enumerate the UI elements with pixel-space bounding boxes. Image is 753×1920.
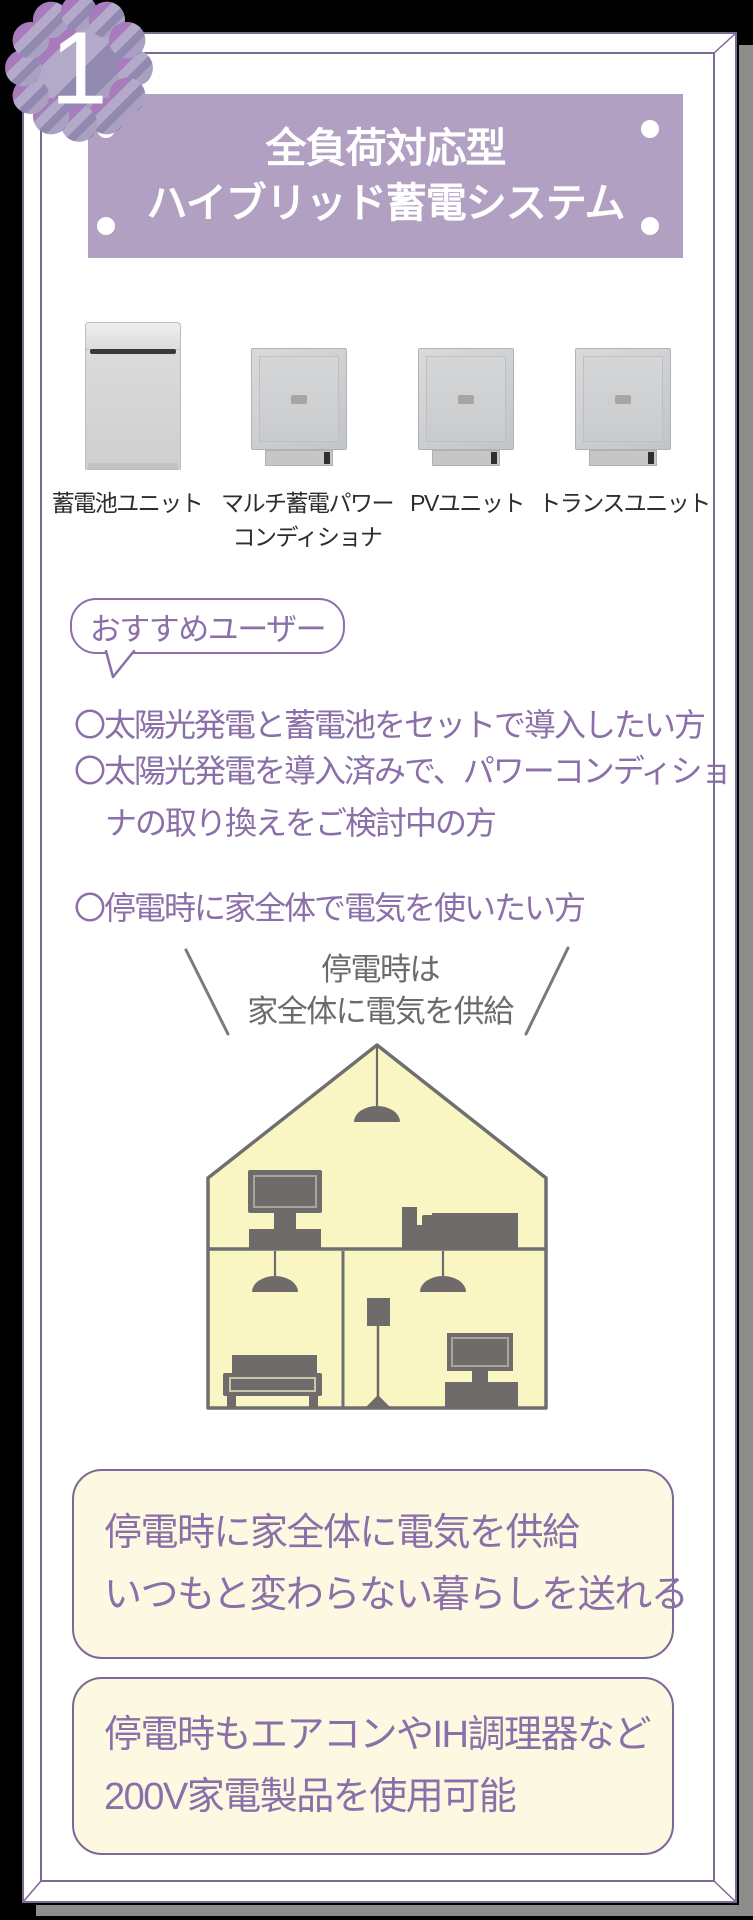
- unit-notch: [324, 452, 330, 464]
- corner-dot: [97, 217, 115, 235]
- battery-base: [88, 463, 178, 469]
- desktop-computer: [248, 1170, 322, 1249]
- pv-unit-image: [418, 348, 514, 466]
- benefit-line: 停電時に家全体に電気を供給: [104, 1502, 672, 1564]
- benefit-box-whole-house: 停電時に家全体に電気を供給 いつもと変わらない暮らしを送れる: [72, 1469, 674, 1659]
- frame-shadow-right: [739, 45, 753, 1907]
- battery-slot: [90, 349, 176, 354]
- bullet-whole-house-power: 〇停電時に家全体で電気を使いたい方: [74, 883, 584, 929]
- corner-dot: [641, 120, 659, 138]
- benefit-line: 200V家電製品を使用可能: [104, 1766, 672, 1828]
- unit-notch: [491, 452, 497, 464]
- unit-body: [418, 348, 514, 450]
- unit-body: [251, 348, 347, 450]
- bullet-replace-conditioner-line1: 〇太陽光発電を導入済みで、パワーコンディショ: [74, 746, 730, 792]
- trans-unit-image: [575, 348, 671, 466]
- product-label-trans: トランスユニット: [529, 486, 719, 520]
- benefit-line: 停電時もエアコンやIH調理器など: [104, 1704, 672, 1766]
- unit-logo: [615, 395, 631, 404]
- bubble-tail: [102, 650, 138, 680]
- benefit-line: いつもと変わらない暮らしを送れる: [104, 1564, 672, 1626]
- badge-number: 1: [50, 10, 107, 125]
- unit-foot: [432, 450, 500, 466]
- emphasis-slash-right: [526, 948, 568, 1034]
- number-1-badge: 1: [4, 0, 154, 144]
- emphasis-slash-left: [186, 950, 228, 1034]
- unit-logo: [291, 395, 307, 404]
- label-line: 蓄電池ユニット: [32, 486, 222, 520]
- battery-top-cap: [86, 323, 180, 350]
- unit-foot: [265, 450, 333, 466]
- bullet-replace-conditioner-line2: ナの取り換えをご検討中の方: [105, 798, 495, 844]
- label-line: コンディショナ: [212, 520, 402, 554]
- product-label-battery: 蓄電池ユニット: [32, 486, 222, 520]
- power-conditioner-image: [251, 348, 347, 466]
- label-line: トランスユニット: [529, 486, 719, 520]
- benefit-box-200v: 停電時もエアコンやIH調理器など 200V家電製品を使用可能: [72, 1677, 674, 1855]
- recommended-users-label: おすすめユーザー: [90, 604, 325, 649]
- unit-logo: [458, 395, 474, 404]
- battery-unit-image: [85, 322, 181, 470]
- page-title-line2: ハイブリッド蓄電システム: [147, 181, 625, 226]
- unit-body: [575, 348, 671, 450]
- flyer-panel: 全負荷対応型 ハイブリッド蓄電システム 1: [0, 0, 753, 1920]
- frame-shadow-bottom: [36, 1905, 753, 1916]
- unit-foot: [589, 450, 657, 466]
- television: [445, 1333, 518, 1408]
- house-illustration: [170, 938, 590, 1416]
- page-title-line1: 全負荷対応型: [266, 126, 506, 171]
- bullet-solar-set: 〇太陽光発電と蓄電池をセットで導入したい方: [74, 700, 704, 746]
- recommended-users-bubble: おすすめユーザー: [70, 598, 345, 654]
- header-plate: 全負荷対応型 ハイブリッド蓄電システム: [88, 94, 683, 258]
- unit-notch: [648, 452, 654, 464]
- corner-dot: [641, 217, 659, 235]
